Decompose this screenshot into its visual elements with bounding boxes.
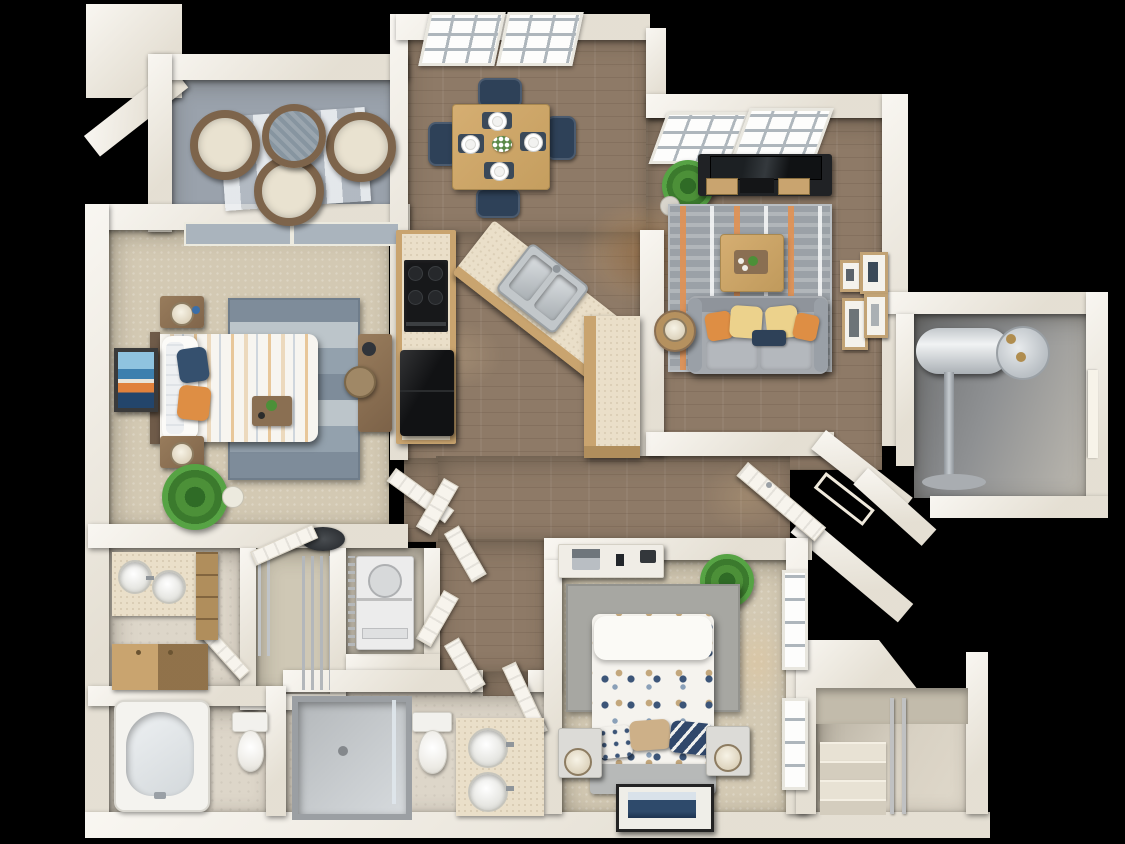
washer-drawer — [362, 628, 408, 639]
tray-cup — [738, 258, 744, 264]
faucet — [551, 263, 562, 274]
laptop-screen — [572, 549, 600, 558]
wall-balcony-top — [150, 54, 408, 80]
peninsula-cabinet-face — [584, 316, 596, 458]
dining-chair — [546, 116, 576, 160]
wall-laundry-bottom — [346, 654, 440, 670]
round-sink — [152, 570, 186, 604]
wall-tubroom-right — [266, 686, 286, 816]
stair-tread — [820, 799, 886, 815]
wall-whcloset-top — [882, 292, 1108, 314]
console-drawer — [706, 178, 738, 195]
plate — [461, 135, 480, 154]
dryer-door — [368, 564, 402, 598]
patio-table — [262, 104, 326, 168]
pipe-fitting-brass — [1006, 334, 1016, 344]
toilet-bowl — [418, 730, 447, 774]
stair-tread — [820, 780, 886, 799]
toilet-tank — [412, 712, 452, 732]
patio-chair — [190, 110, 260, 180]
frame-image — [849, 309, 859, 337]
vanity-drawers — [196, 552, 218, 640]
laundry-wire-shelf — [348, 556, 355, 646]
desk-accessory — [640, 550, 656, 563]
wall-outer-left — [85, 204, 109, 838]
potted-plant — [162, 464, 228, 530]
nightstand-lamp — [170, 302, 194, 326]
closet-wire-shelving — [302, 556, 330, 690]
cabinet-handle — [168, 650, 173, 655]
wall-stairwell-right — [966, 652, 988, 814]
tv-screen — [710, 156, 822, 180]
framed-art-image — [628, 792, 696, 818]
closet-door-edge — [1088, 370, 1098, 458]
desk-accessory — [616, 554, 624, 566]
patio-chair — [326, 112, 396, 182]
console-shelf — [740, 178, 774, 193]
bed2-pillow-tan — [629, 719, 671, 752]
stair-handrail — [902, 698, 906, 814]
pipe-fitting-brass — [1016, 352, 1026, 362]
burner — [428, 266, 443, 281]
cabinet-handle — [136, 650, 141, 655]
refrigerator — [400, 350, 454, 436]
flower-centerpiece — [492, 136, 512, 152]
toilet-tank — [232, 712, 268, 732]
wall-art-frame — [840, 260, 862, 292]
plate — [488, 112, 507, 131]
sofa-seat-cushion — [706, 340, 758, 370]
drum-lamp — [714, 744, 742, 772]
stair-tread — [820, 742, 886, 761]
drum-lamp — [564, 748, 592, 776]
dining-window — [418, 12, 505, 66]
refrigerator-seam — [400, 390, 454, 392]
plate — [490, 162, 509, 181]
door-knob — [766, 482, 772, 488]
wall-art-frame — [864, 294, 888, 338]
stair-handrail — [890, 698, 894, 814]
shower-glass — [392, 700, 396, 804]
oven-handle — [406, 322, 446, 326]
desk-chair — [344, 366, 376, 398]
bed2-fold — [594, 616, 712, 660]
nightstand-lamp — [170, 442, 194, 466]
faucet — [506, 786, 514, 791]
wall-whcloset-bottom — [930, 496, 1108, 518]
supply-pipe — [944, 372, 954, 484]
tray-cup — [742, 265, 748, 271]
bathtub-basin — [126, 712, 194, 796]
lower-cabinet — [112, 644, 208, 690]
frame-image — [846, 269, 854, 281]
pillow-orange — [176, 384, 211, 421]
master-bedroom-sliding-window — [292, 222, 400, 246]
faucet — [506, 742, 514, 747]
floorplan-scene — [0, 0, 1125, 844]
desk-lamp — [362, 342, 376, 356]
table-lamp — [663, 318, 687, 342]
bedroom2-window-lower — [782, 698, 808, 790]
tray-cup — [258, 412, 265, 419]
master-bedroom-sliding-window — [184, 222, 292, 246]
washer-dryer-seam — [356, 598, 412, 601]
closet-wire-shelving — [258, 556, 272, 656]
nightstand-accent — [192, 306, 200, 314]
bedroom2-window-upper — [782, 570, 808, 670]
tray-plant — [748, 256, 758, 266]
faucet — [146, 576, 154, 580]
wall-whcloset-left — [896, 314, 914, 466]
frame-image — [871, 304, 879, 326]
burner — [408, 266, 423, 281]
stair-tread — [820, 761, 886, 780]
dining-chair — [476, 188, 520, 218]
wall-art-frame — [860, 252, 888, 294]
wall-master-bedroom-bottom — [88, 524, 408, 548]
toilet-bowl — [237, 730, 264, 772]
abstract-wall-art — [114, 348, 158, 412]
tub-faucet — [154, 792, 166, 799]
stairwell-roof — [796, 640, 918, 690]
frame-image — [868, 262, 878, 282]
console-drawer — [778, 178, 810, 195]
lumbar-pillow-navy — [752, 330, 786, 346]
wall-living-bottom — [646, 432, 834, 456]
round-sink — [468, 772, 508, 812]
round-sink — [468, 728, 508, 768]
pipe-base — [922, 474, 986, 490]
shower-drain — [338, 746, 348, 756]
peninsula-cabinet-face — [584, 446, 640, 458]
tray-plant — [266, 400, 277, 411]
burner — [428, 290, 443, 305]
burner — [408, 290, 423, 305]
pillow-navy — [176, 346, 210, 384]
plate — [524, 133, 543, 152]
dining-window — [496, 12, 583, 66]
plant-pot — [222, 486, 244, 508]
